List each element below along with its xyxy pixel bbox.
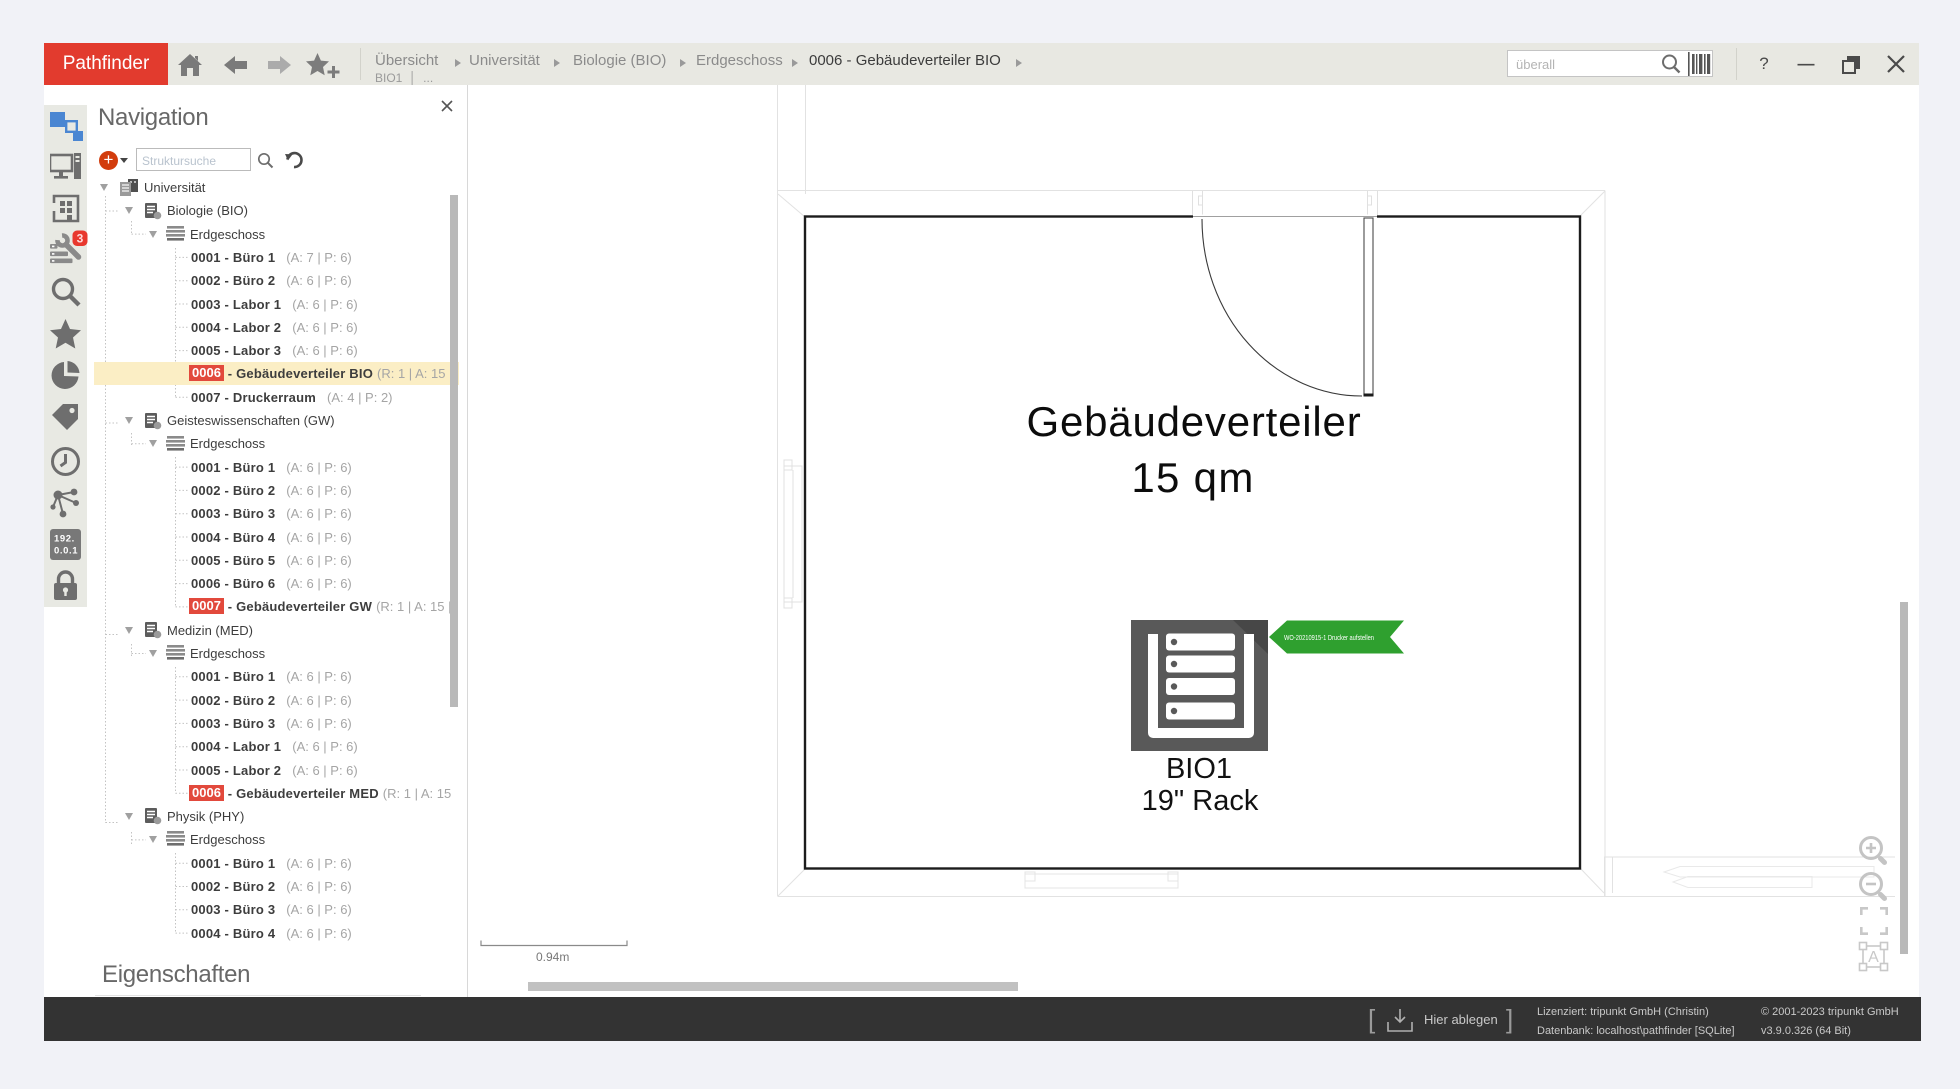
svg-text:WO-20210915-1 Drucker aufstell: WO-20210915-1 Drucker aufstellen	[1284, 635, 1374, 642]
svg-text:0.94m: 0.94m	[536, 950, 569, 964]
svg-text:19" Rack: 19" Rack	[1142, 785, 1259, 817]
svg-text:15 qm: 15 qm	[1131, 454, 1254, 501]
svg-text:BIO1: BIO1	[1166, 753, 1232, 785]
svg-text:A: A	[1868, 949, 1879, 966]
svg-text:Gebäudeverteiler: Gebäudeverteiler	[1027, 398, 1362, 445]
